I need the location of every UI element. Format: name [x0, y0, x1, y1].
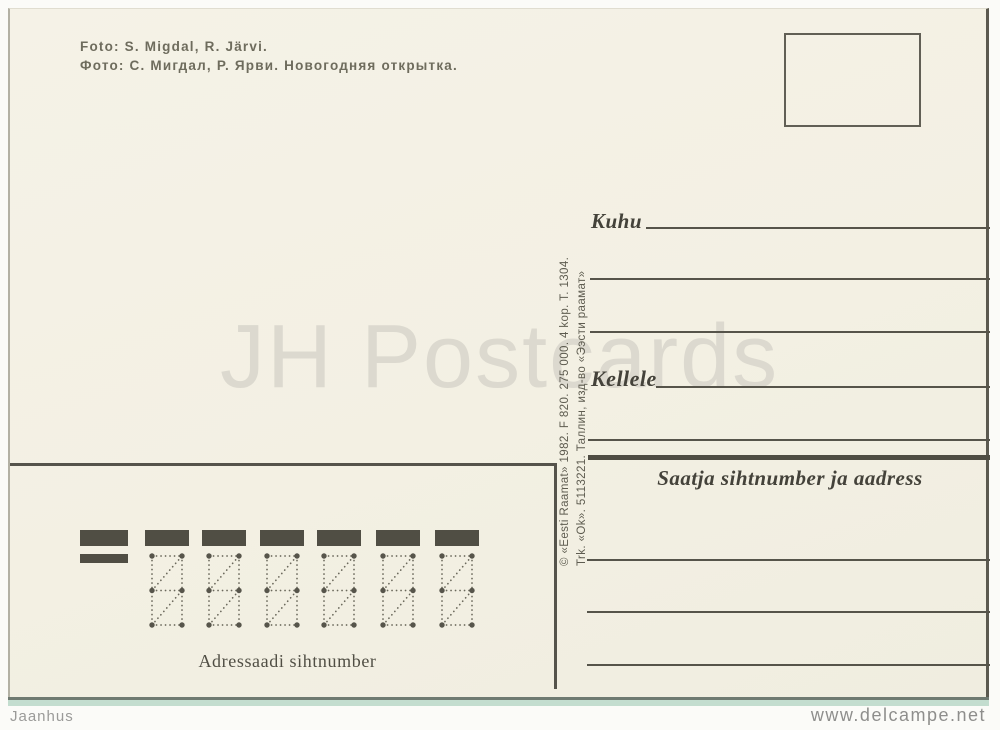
- scan-page: Foto: S. Migdal, R. Järvi. Фото: С. Мигд…: [0, 0, 1000, 730]
- postal-code-stencil-icon: [205, 552, 243, 629]
- kellele-line: [656, 386, 990, 388]
- postal-code-stencil-icon: [438, 552, 476, 629]
- stamp-box: [784, 33, 921, 127]
- postal-code-bar: [435, 530, 479, 546]
- sender-address-line: [587, 664, 990, 666]
- postal-code-stencil-icon: [320, 552, 358, 629]
- postal-code-bar: [317, 530, 361, 546]
- imprint-line-1: © «Eesti Raamat» 1982. F 820. 275 000. 4…: [557, 214, 574, 566]
- postcard-back: Foto: S. Migdal, R. Järvi. Фото: С. Мигд…: [8, 8, 989, 706]
- collector-name-watermark: Jaanhus: [10, 708, 74, 725]
- postal-zone-right-border: [554, 463, 557, 689]
- postal-code-bar: [260, 530, 304, 546]
- photo-credit: Foto: S. Migdal, R. Järvi. Фото: С. Мигд…: [80, 37, 458, 75]
- postal-code-stencil-icon: [263, 552, 301, 629]
- postal-code-stencil-icon: [379, 552, 417, 629]
- kellele-label: Kellele: [591, 366, 657, 392]
- photo-credit-line-estonian: Foto: S. Migdal, R. Järvi.: [80, 37, 458, 56]
- kuhu-label: Kuhu: [591, 209, 642, 234]
- watermark-text: JH Postcards: [220, 306, 779, 409]
- address-line: [590, 331, 990, 333]
- postal-code-bar: [376, 530, 420, 546]
- postal-start-marker-bar: [80, 530, 128, 546]
- postal-start-marker-bar: [80, 554, 128, 563]
- sender-address-line: [587, 611, 990, 613]
- sender-divider-line: [588, 455, 990, 460]
- postal-code-stencil-icon: [148, 552, 186, 629]
- publisher-imprint: © «Eesti Raamat» 1982. F 820. 275 000. 4…: [557, 214, 593, 566]
- imprint-line-2: Trk. «Ok». 5113221. Таллин, изд-во «Ээст…: [574, 214, 591, 566]
- sender-postcode-address-label: Saatja sihtnumber ja aadress: [635, 466, 945, 491]
- postal-code-bar: [202, 530, 246, 546]
- recipient-postcode-label: Adressaadi sihtnumber: [165, 651, 410, 672]
- delcampe-watermark: www.delcampe.net: [811, 705, 986, 726]
- postal-zone-top-border: [10, 463, 557, 466]
- sender-address-line: [587, 559, 990, 561]
- photo-credit-line-russian: Фото: С. Мигдал, Р. Ярви. Новогодняя отк…: [80, 56, 458, 75]
- postal-code-bar: [145, 530, 189, 546]
- address-line: [588, 439, 990, 441]
- address-line: [590, 278, 990, 280]
- kuhu-line: [646, 227, 990, 229]
